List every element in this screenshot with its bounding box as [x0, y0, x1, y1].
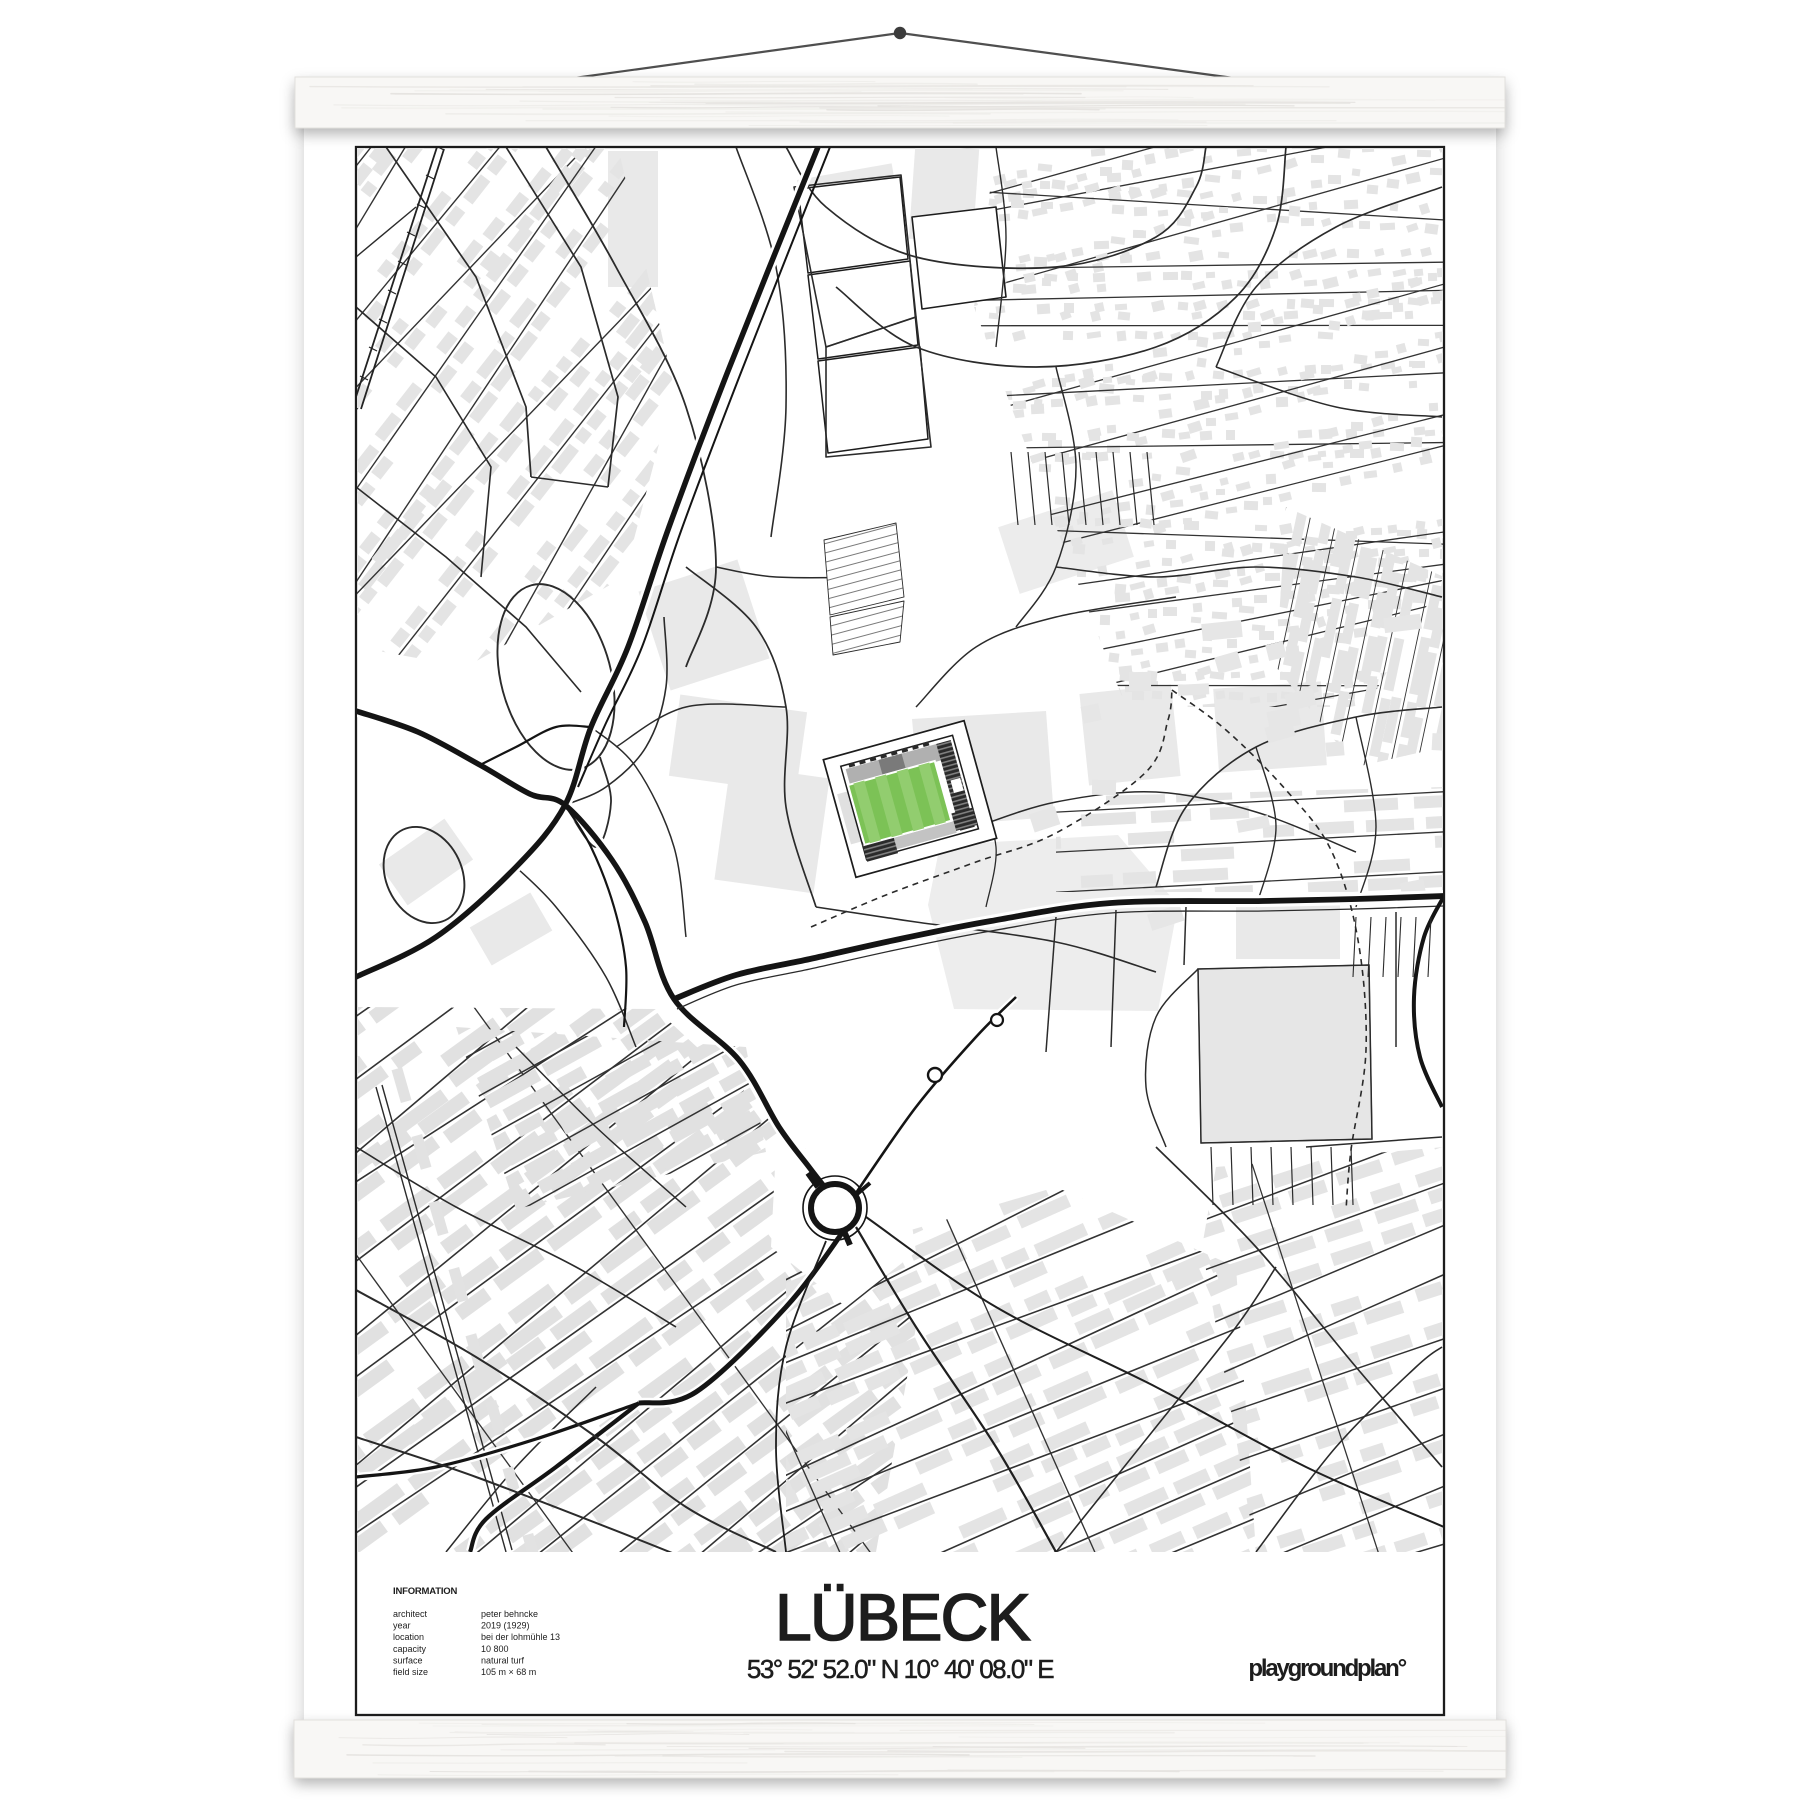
svg-text:year: year — [393, 1621, 411, 1631]
svg-text:capacity: capacity — [393, 1644, 427, 1654]
svg-text:bei der lohmühle 13: bei der lohmühle 13 — [481, 1632, 560, 1642]
svg-text:peter behncke: peter behncke — [481, 1609, 538, 1619]
svg-text:2019 (1929): 2019 (1929) — [481, 1621, 530, 1631]
svg-text:natural turf: natural turf — [481, 1655, 525, 1665]
svg-text:10 800: 10 800 — [481, 1644, 509, 1654]
svg-text:INFORMATION: INFORMATION — [393, 1586, 457, 1597]
svg-text:field size: field size — [393, 1667, 428, 1677]
svg-text:architect: architect — [393, 1609, 428, 1619]
svg-text:LÜBECK: LÜBECK — [775, 1580, 1031, 1654]
svg-text:53° 52' 52.0" N 10° 40' 08.0": 53° 52' 52.0" N 10° 40' 08.0" E — [747, 1654, 1054, 1684]
svg-text:105 m × 68 m: 105 m × 68 m — [481, 1667, 536, 1677]
svg-text:surface: surface — [393, 1655, 423, 1665]
svg-text:playgroundplan°: playgroundplan° — [1248, 1655, 1406, 1682]
svg-text:location: location — [393, 1632, 424, 1642]
